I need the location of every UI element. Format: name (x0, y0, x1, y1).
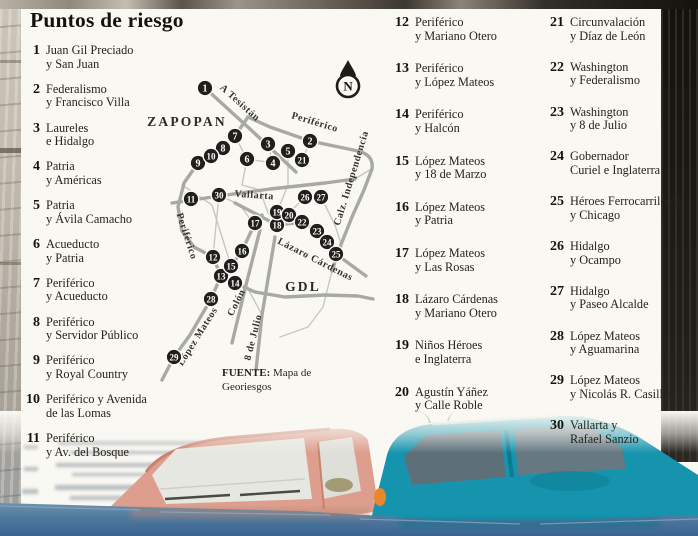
item-text: López Mateosy Patria (415, 201, 485, 247)
list-item-12: 12Periféricoy Mariano Otero (386, 16, 538, 62)
list-item-27: 27Hidalgoy Paseo Alcalde (540, 285, 698, 330)
source-note: FUENTE: Mapa de Georiesgos (222, 367, 311, 394)
item-text: Periféricoy Servidor Público (46, 316, 138, 355)
list-item-17: 17López Mateosy Las Rosas (386, 247, 538, 293)
list-item-6: 6Acueductoy Patria (24, 238, 182, 277)
map-marker-10: 10 (203, 148, 219, 164)
map-marker-26: 26 (297, 189, 313, 205)
item-number: 8 (24, 316, 46, 355)
item-text: Hidalgoy Ocampo (570, 240, 621, 285)
item-text: Acueductoy Patria (46, 238, 99, 277)
item-text: Hidalgoy Paseo Alcalde (570, 285, 649, 330)
list-item-14: 14Periféricoy Halcón (386, 108, 538, 154)
item-number: 25 (540, 195, 570, 240)
item-text: GobernadorCuriel e Inglaterra (570, 150, 660, 195)
item-text: Patriay Américas (46, 160, 102, 199)
map-marker-15: 15 (223, 258, 239, 274)
risk-list-column-2: 12Periféricoy Mariano Otero13Periféricoy… (386, 16, 538, 432)
map-marker-4: 4 (265, 155, 281, 171)
item-text: Patriay Ávila Camacho (46, 199, 132, 238)
map-marker-30: 30 (211, 187, 227, 203)
item-number: 4 (24, 160, 46, 199)
map-marker-17: 17 (247, 215, 263, 231)
item-text: Periféricoy López Mateos (415, 62, 494, 108)
list-item-21: 21Circunvalacióny Díaz de León (540, 16, 698, 61)
map-marker-27: 27 (313, 189, 329, 205)
item-number: 5 (24, 199, 46, 238)
item-number: 2 (24, 83, 46, 122)
list-item-15: 15López Mateosy 18 de Marzo (386, 155, 538, 201)
svg-text:14: 14 (231, 278, 241, 288)
item-number: 28 (540, 330, 570, 375)
svg-text:3: 3 (266, 139, 271, 150)
map-marker-11: 11 (183, 191, 199, 207)
svg-text:4: 4 (271, 158, 276, 169)
svg-text:11: 11 (187, 194, 196, 204)
item-text: Vallarta yRafael Sanzio (570, 419, 639, 464)
item-number: 12 (386, 16, 415, 62)
map-marker-21: 21 (294, 152, 310, 168)
item-text: Periféricoy Acueducto (46, 277, 108, 316)
list-item-29: 29López Mateosy Nicolás R. Casillas (540, 374, 698, 419)
list-item-7: 7Periféricoy Acueducto (24, 277, 182, 316)
list-item-4: 4Patriay Américas (24, 160, 182, 199)
item-number: 10 (24, 393, 46, 432)
list-item-2: 2Federalismoy Francisco Villa (24, 83, 182, 122)
map-marker-28: 28 (203, 291, 219, 307)
svg-text:8: 8 (221, 143, 226, 154)
item-text: Circunvalacióny Díaz de León (570, 16, 645, 61)
svg-text:12: 12 (209, 252, 219, 262)
wall-mark (0, 148, 21, 153)
svg-text:7: 7 (233, 131, 238, 142)
page-title: Puntos de riesgo (30, 8, 184, 33)
svg-text:17: 17 (251, 218, 261, 228)
item-text: Agustín Yáñezy Calle Roble (415, 386, 488, 432)
item-text: Federalismoy Francisco Villa (46, 83, 130, 122)
svg-text:13: 13 (217, 271, 227, 281)
map-marker-2: 2 (302, 133, 318, 149)
list-item-1: 1Juan Gil Preciadoy San Juan (24, 44, 182, 83)
svg-text:1: 1 (203, 83, 208, 94)
svg-text:25: 25 (332, 249, 342, 259)
risk-list-column-3: 21Circunvalacióny Díaz de León22Washingt… (540, 16, 698, 464)
svg-text:16: 16 (238, 246, 248, 256)
list-item-8: 8Periféricoy Servidor Público (24, 316, 182, 355)
item-number: 15 (386, 155, 415, 201)
list-item-16: 16López Mateosy Patria (386, 201, 538, 247)
item-text: Periféricoy Royal Country (46, 354, 128, 393)
map-marker-22: 22 (294, 214, 310, 230)
city-label-gdl: GDL (285, 279, 321, 294)
item-number: 9 (24, 354, 46, 393)
item-number: 17 (386, 247, 415, 293)
item-text: Washingtony 8 de Julio (570, 106, 628, 151)
item-number: 30 (540, 419, 570, 464)
item-number: 14 (386, 108, 415, 154)
item-text: Juan Gil Preciadoy San Juan (46, 44, 133, 83)
list-item-10: 10Periférico y Avenidade las Lomas (24, 393, 182, 432)
item-text: Periféricoy Halcón (415, 108, 463, 154)
svg-text:20: 20 (285, 210, 295, 220)
svg-text:26: 26 (301, 192, 311, 202)
road-label-vallarta: Vallarta (234, 189, 274, 203)
svg-text:28: 28 (207, 294, 217, 304)
svg-text:6: 6 (245, 154, 250, 165)
svg-text:24: 24 (323, 237, 333, 247)
svg-text:23: 23 (313, 226, 323, 236)
map-marker-5: 5 (280, 143, 296, 159)
svg-text:2: 2 (308, 136, 313, 147)
item-number: 22 (540, 61, 570, 106)
svg-text:5: 5 (286, 146, 291, 157)
item-number: 23 (540, 106, 570, 151)
item-number: 11 (24, 432, 46, 471)
item-text: Periféricoy Mariano Otero (415, 16, 497, 62)
map-marker-1: 1 (197, 80, 213, 96)
item-text: López Mateosy 18 de Marzo (415, 155, 486, 201)
item-number: 20 (386, 386, 415, 432)
item-number: 29 (540, 374, 570, 419)
wall-mark (0, 262, 21, 265)
infographic: Puntos de riesgo 1Juan Gil Preciadoy San… (0, 0, 698, 536)
item-number: 26 (540, 240, 570, 285)
item-number: 3 (24, 122, 46, 161)
map-marker-6: 6 (239, 151, 255, 167)
item-number: 19 (386, 339, 415, 385)
list-item-18: 18Lázaro Cárdenasy Mariano Otero (386, 293, 538, 339)
svg-text:9: 9 (196, 158, 201, 169)
compass-icon: N (337, 60, 359, 97)
item-number: 1 (24, 44, 46, 83)
list-item-22: 22Washingtony Federalismo (540, 61, 698, 106)
svg-text:27: 27 (317, 192, 327, 202)
list-item-5: 5Patriay Ávila Camacho (24, 199, 182, 238)
list-item-26: 26Hidalgoy Ocampo (540, 240, 698, 285)
svg-text:10: 10 (207, 151, 217, 161)
svg-text:22: 22 (298, 217, 308, 227)
item-number: 13 (386, 62, 415, 108)
item-text: Periféricoy Av. del Bosque (46, 432, 129, 471)
item-number: 24 (540, 150, 570, 195)
item-text: López Mateosy Aguamarina (570, 330, 640, 375)
map-marker-16: 16 (234, 243, 250, 259)
list-item-3: 3Laurelese Hidalgo (24, 122, 182, 161)
item-number: 7 (24, 277, 46, 316)
list-item-30: 30Vallarta yRafael Sanzio (540, 419, 698, 464)
item-text: Lázaro Cárdenasy Mariano Otero (415, 293, 498, 339)
road-8-de-julio (256, 237, 275, 370)
list-item-13: 13Periféricoy López Mateos (386, 62, 538, 108)
source-label: FUENTE: (222, 367, 270, 379)
item-text: López Mateosy Nicolás R. Casillas (570, 374, 673, 419)
risk-list-column-1: 1Juan Gil Preciadoy San Juan2Federalismo… (24, 44, 182, 471)
list-item-24: 24GobernadorCuriel e Inglaterra (540, 150, 698, 195)
map-marker-12: 12 (205, 249, 221, 265)
svg-text:21: 21 (298, 155, 308, 165)
item-text: López Mateosy Las Rosas (415, 247, 485, 293)
item-number: 21 (540, 16, 570, 61)
svg-text:18: 18 (273, 220, 283, 230)
map-marker-7: 7 (227, 128, 243, 144)
map-marker-25: 25 (328, 246, 344, 262)
road-label-8-de-julio: 8 de Julio (243, 313, 265, 361)
map-marker-3: 3 (260, 136, 276, 152)
item-text: Héroes Ferrocarrilerosy Chicago (570, 195, 681, 240)
item-text: Laurelese Hidalgo (46, 122, 94, 161)
item-number: 16 (386, 201, 415, 247)
list-item-25: 25Héroes Ferrocarrilerosy Chicago (540, 195, 698, 240)
map-marker-14: 14 (227, 275, 243, 291)
compass-n-label: N (343, 79, 353, 94)
list-item-28: 28López Mateosy Aguamarina (540, 330, 698, 375)
item-text: Periférico y Avenidade las Lomas (46, 393, 147, 432)
list-item-20: 20Agustín Yáñezy Calle Roble (386, 386, 538, 432)
item-text: Washingtony Federalismo (570, 61, 640, 106)
wall-mark (0, 60, 21, 63)
item-text: Niños Héroese Inglaterra (415, 339, 482, 385)
list-item-19: 19Niños Héroese Inglaterra (386, 339, 538, 385)
svg-text:15: 15 (227, 261, 237, 271)
item-number: 27 (540, 285, 570, 330)
svg-text:30: 30 (215, 190, 225, 200)
list-item-23: 23Washingtony 8 de Julio (540, 106, 698, 151)
item-number: 6 (24, 238, 46, 277)
road-label-calz-independencia: Calz. Independencia (332, 129, 371, 227)
list-item-9: 9Periféricoy Royal Country (24, 354, 182, 393)
list-item-11: 11Periféricoy Av. del Bosque (24, 432, 182, 471)
road-label-perif-rico: Periférico (290, 110, 339, 135)
item-number: 18 (386, 293, 415, 339)
road-label-col-n: Colón (225, 288, 248, 318)
